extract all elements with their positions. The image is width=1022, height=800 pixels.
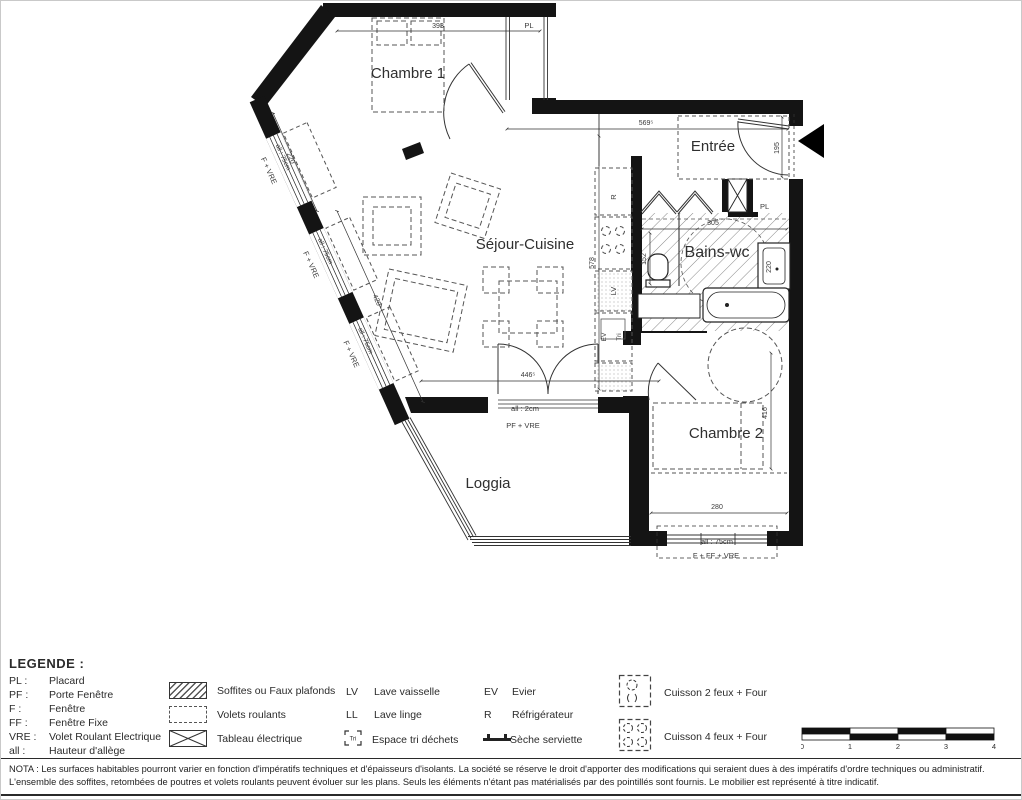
r-abbr: R [484, 709, 512, 721]
room-label-loggia: Loggia [465, 475, 511, 492]
abbr: FF : [9, 717, 49, 729]
ev-abbr: EV [484, 686, 512, 698]
legend-abbr-pf: PF :Porte Fenêtre [9, 689, 113, 701]
kitchen-counter [595, 168, 632, 391]
dim-446: 446⁵ [521, 372, 536, 379]
dim-416: 416 [762, 407, 769, 419]
cuisson2-icon [618, 674, 652, 711]
nota-section: NOTA : Les surfaces habitables pourront … [1, 758, 1022, 788]
volets-label: Volets roulants [217, 709, 286, 721]
lv-label: Lave vaisselle [374, 686, 440, 698]
seche-label: Sèche serviette [510, 734, 582, 746]
volets-swatch-icon [169, 706, 207, 723]
legend-ev: EV Evier [484, 686, 536, 698]
kitchen-dishwasher-label: LV [609, 287, 618, 296]
dim-393: 393 [432, 23, 444, 30]
abbr-label: Fenêtre [49, 703, 85, 715]
room-label-sejour: Séjour-Cuisine [476, 236, 574, 253]
legend-title: LEGENDE : [9, 656, 84, 671]
abbr-label: Placard [49, 675, 85, 687]
loggia-door-label: PF + VRE [506, 421, 540, 430]
kitchen-tri-label: Tri [616, 333, 623, 340]
legend-abbr-pl: PL :Placard [9, 675, 85, 687]
legend-abbr-all: all :Hauteur d'allège [9, 745, 125, 757]
bottom-rule [1, 794, 1022, 796]
cuisson4-icon [618, 718, 652, 755]
ch2-allege-label: all : 75cm [701, 537, 733, 546]
room-label-bains: Bains-wc [685, 244, 750, 261]
room-label-entree: Entrée [691, 138, 735, 155]
soffites-swatch-icon [169, 682, 207, 699]
room-label-chambre2: Chambre 2 [689, 425, 763, 442]
dim-280: 280 [711, 504, 723, 511]
scale-tick-3: 3 [944, 742, 948, 751]
electrical-panel [728, 179, 747, 212]
legend-tableau: Tableau électrique [169, 730, 302, 747]
lv-abbr: LV [346, 686, 374, 698]
bath-cupboard [638, 294, 700, 318]
cuisson4-label: Cuisson 4 feux + Four [664, 731, 767, 743]
left-facade-wall: all : 75cm all : 75cm all : 75cm F + VRE… [236, 84, 435, 431]
scale-tick-2: 2 [896, 742, 900, 751]
room-label-chambre1: Chambre 1 [371, 65, 445, 82]
cuisson2-label: Cuisson 2 feux + Four [664, 687, 767, 699]
folding-door [641, 191, 713, 214]
floor-plan-sheet: all : 75cm all : 75cm all : 75cm F + VRE… [0, 0, 1022, 800]
legend-soffites: Soffites ou Faux plafonds [169, 682, 335, 699]
ll-abbr: LL [346, 709, 374, 721]
abbr-label: Porte Fenêtre [49, 689, 113, 701]
legend-abbr-ff: FF :Fenêtre Fixe [9, 717, 108, 729]
placard-label-bains: PL [760, 202, 769, 211]
dim-420: 420 [371, 294, 382, 308]
soffites-label: Soffites ou Faux plafonds [217, 685, 335, 697]
dim-195: 195 [774, 142, 781, 154]
dim-152: 152 [641, 253, 648, 265]
tri-icon: Tri [344, 730, 372, 749]
abbr: PL : [9, 675, 49, 687]
scale-tick-1: 1 [848, 742, 852, 751]
ch2-window-label: F + FF + VRE [693, 551, 739, 560]
loggia-allege-label: all : 2cm [511, 404, 539, 413]
legend-cuisson4: Cuisson 4 feux + Four [618, 718, 767, 755]
placard-label-top: PL [524, 21, 533, 30]
dim-569: 569⁵ [639, 120, 654, 127]
legend-r: R Réfrigérateur [484, 709, 573, 721]
tri-label: Espace tri déchets [372, 734, 458, 746]
tableau-label: Tableau électrique [217, 733, 302, 745]
entrance-arrow-icon [798, 124, 824, 158]
washbasin [758, 243, 790, 289]
legend-cuisson2: Cuisson 2 feux + Four [618, 674, 767, 711]
dim-220-basin: 220 [766, 261, 773, 273]
abbr-label: Volet Roulant Electrique [49, 731, 161, 743]
legend-lv: LV Lave vaisselle [346, 686, 440, 698]
ev-label: Evier [512, 686, 536, 698]
abbr: all : [9, 745, 49, 757]
legend-tri: Tri Espace tri déchets [344, 730, 458, 749]
seche-serviette-icon [482, 732, 510, 747]
scale-tick-4: 4 [992, 742, 996, 751]
legend-abbr-vre: VRE :Volet Roulant Electrique [9, 731, 161, 743]
nota-text: NOTA : Les surfaces habitables pourront … [1, 759, 1022, 788]
legend-volets: Volets roulants [169, 706, 286, 723]
legend-abbr-f: F :Fenêtre [9, 703, 85, 715]
dim-578: 578 [589, 257, 596, 269]
bathtub [703, 288, 789, 322]
r-label: Réfrigérateur [512, 709, 573, 721]
towel-dryer [728, 212, 758, 217]
legend: LEGENDE : PL :Placard PF :Porte Fenêtre … [1, 656, 1022, 758]
scale-bar: 0 1 2 3 4 [801, 726, 1006, 752]
kitchen-sink-label: EV [601, 332, 608, 341]
ll-label: Lave linge [374, 709, 422, 721]
floor-plan-drawing: all : 75cm all : 75cm all : 75cm F + VRE… [1, 1, 1022, 656]
kitchen-fridge-label: R [609, 194, 618, 200]
legend-seche: Sèche serviette [482, 732, 582, 747]
abbr: F : [9, 703, 49, 715]
toilet [646, 254, 670, 287]
scale-tick-0: 0 [801, 742, 804, 751]
abbr-label: Fenêtre Fixe [49, 717, 108, 729]
legend-ll: LL Lave linge [346, 709, 422, 721]
tableau-swatch-icon [169, 730, 207, 747]
tri-icon-text: Tri [350, 737, 357, 743]
loggia-railing [402, 418, 631, 546]
abbr: PF : [9, 689, 49, 701]
dim-305: 305 [707, 220, 719, 227]
abbr: VRE : [9, 731, 49, 743]
abbr-label: Hauteur d'allège [49, 745, 125, 757]
